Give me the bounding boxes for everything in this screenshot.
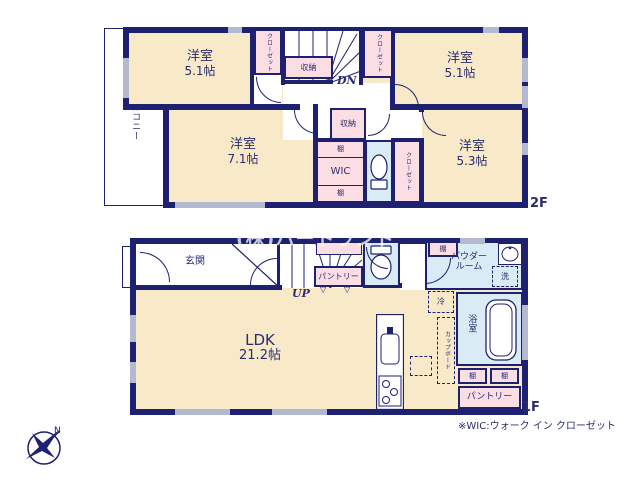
room-size: 5.3帖 (432, 155, 512, 169)
watermark: (株)ハートランド (236, 224, 395, 251)
room-size: 21.2帖 (210, 349, 310, 364)
window (175, 409, 230, 415)
storage-label: 収納 (340, 119, 356, 128)
wall (129, 104, 300, 110)
window (522, 58, 528, 82)
shelf-1f-b: 棚 (490, 368, 519, 384)
floor-plan: バルコニー クローゼット クローゼット 収納 DN (0, 0, 640, 480)
storage-label: 収納 (301, 63, 317, 72)
fridge-space: 冷 (428, 291, 454, 313)
room-name: 洋室 (432, 140, 512, 155)
cupboard-label: カップボード (443, 331, 450, 370)
hall-1f (400, 244, 425, 290)
room-label-2f-northeast: 洋室 5.1帖 (420, 52, 500, 81)
wall (283, 80, 333, 84)
closet-label: クローゼット (404, 152, 411, 191)
shelf-label: 棚 (469, 372, 476, 380)
stairs-dn-label: DN (337, 75, 357, 88)
closet-2f-south: クローゼット (393, 140, 421, 203)
fridge-label: 冷 (437, 297, 445, 306)
window (522, 86, 528, 108)
washer-space: 洗 (492, 266, 518, 287)
wic-room: WIC (318, 158, 363, 185)
closet-label: クローゼット (375, 34, 382, 73)
hall-2f-roomd-front (393, 110, 422, 140)
window (130, 362, 136, 383)
kitchen-counter (376, 314, 404, 410)
room-label-2f-northwest: 洋室 5.1帖 (160, 50, 240, 79)
sink-icon (498, 243, 522, 265)
room-label-2f-southeast: 洋室 5.3帖 (432, 140, 512, 169)
shelf-2f-top: 棚 (318, 142, 363, 158)
closet-2f-northwest: クローゼット (254, 29, 282, 75)
closet-2f-north: クローゼット (363, 29, 393, 78)
pantry-north: パントリー (314, 266, 363, 287)
closet-label: クローゼット (265, 33, 272, 72)
toilet-room-2f (365, 140, 393, 203)
floor1-label: 1F (522, 400, 540, 415)
counter-space (410, 356, 432, 376)
wall (136, 285, 282, 290)
wic-label: WIC (331, 166, 351, 178)
room-name: LDK (210, 332, 310, 349)
compass-icon: N (18, 420, 70, 472)
shelf-label: 棚 (337, 189, 344, 197)
shelf-label: 棚 (501, 372, 508, 380)
cupboard-space: カップボード (437, 317, 455, 384)
room-size: 5.1帖 (160, 65, 240, 79)
stairs-up-label: UP (292, 288, 310, 301)
room-size: 5.1帖 (420, 67, 500, 81)
window (483, 27, 499, 33)
compass-north-label: N (54, 426, 61, 436)
window (123, 58, 129, 98)
window (272, 409, 327, 415)
ldk-label: LDK 21.2帖 (210, 332, 310, 364)
bathtub-icon (485, 299, 517, 361)
window (522, 305, 528, 360)
room-name: 洋室 (160, 50, 240, 65)
washer-label: 洗 (501, 272, 509, 281)
bathroom-label: 浴室 (466, 314, 476, 333)
swing-mark: ▽ (320, 285, 326, 294)
wic-column: 棚 WIC 棚 (316, 140, 365, 203)
room-size: 7.1帖 (203, 153, 283, 167)
window (460, 238, 485, 244)
room-name: 洋室 (203, 138, 283, 153)
window (130, 315, 136, 342)
window (522, 143, 528, 155)
shelf-2f-bottom: 棚 (318, 185, 363, 201)
hall-2f-wic-front (316, 110, 330, 140)
storage-2f-stairs: 収納 (284, 56, 333, 79)
window (175, 202, 265, 208)
toilet-icon (367, 142, 391, 201)
shelf-1f-a: 棚 (458, 368, 487, 384)
entrance-label: 玄関 (173, 256, 217, 268)
floor2-label: 2F (530, 196, 548, 211)
room-label-2f-west: 洋室 7.1帖 (203, 138, 283, 167)
shelf-label: 棚 (337, 145, 344, 153)
pantry-label: パントリー (467, 392, 512, 402)
wall (419, 104, 424, 112)
room-name: 洋室 (420, 52, 500, 67)
wic-note: ※WIC:ウォーク イン クローゼット (458, 417, 616, 432)
window (228, 27, 242, 33)
storage-2f-mid: 収納 (330, 108, 366, 140)
pantry-south: パントリー (458, 386, 521, 409)
bathroom: 浴室 (456, 292, 523, 366)
swing-mark: ▽ (344, 285, 350, 294)
pantry-label: パントリー (318, 272, 358, 281)
